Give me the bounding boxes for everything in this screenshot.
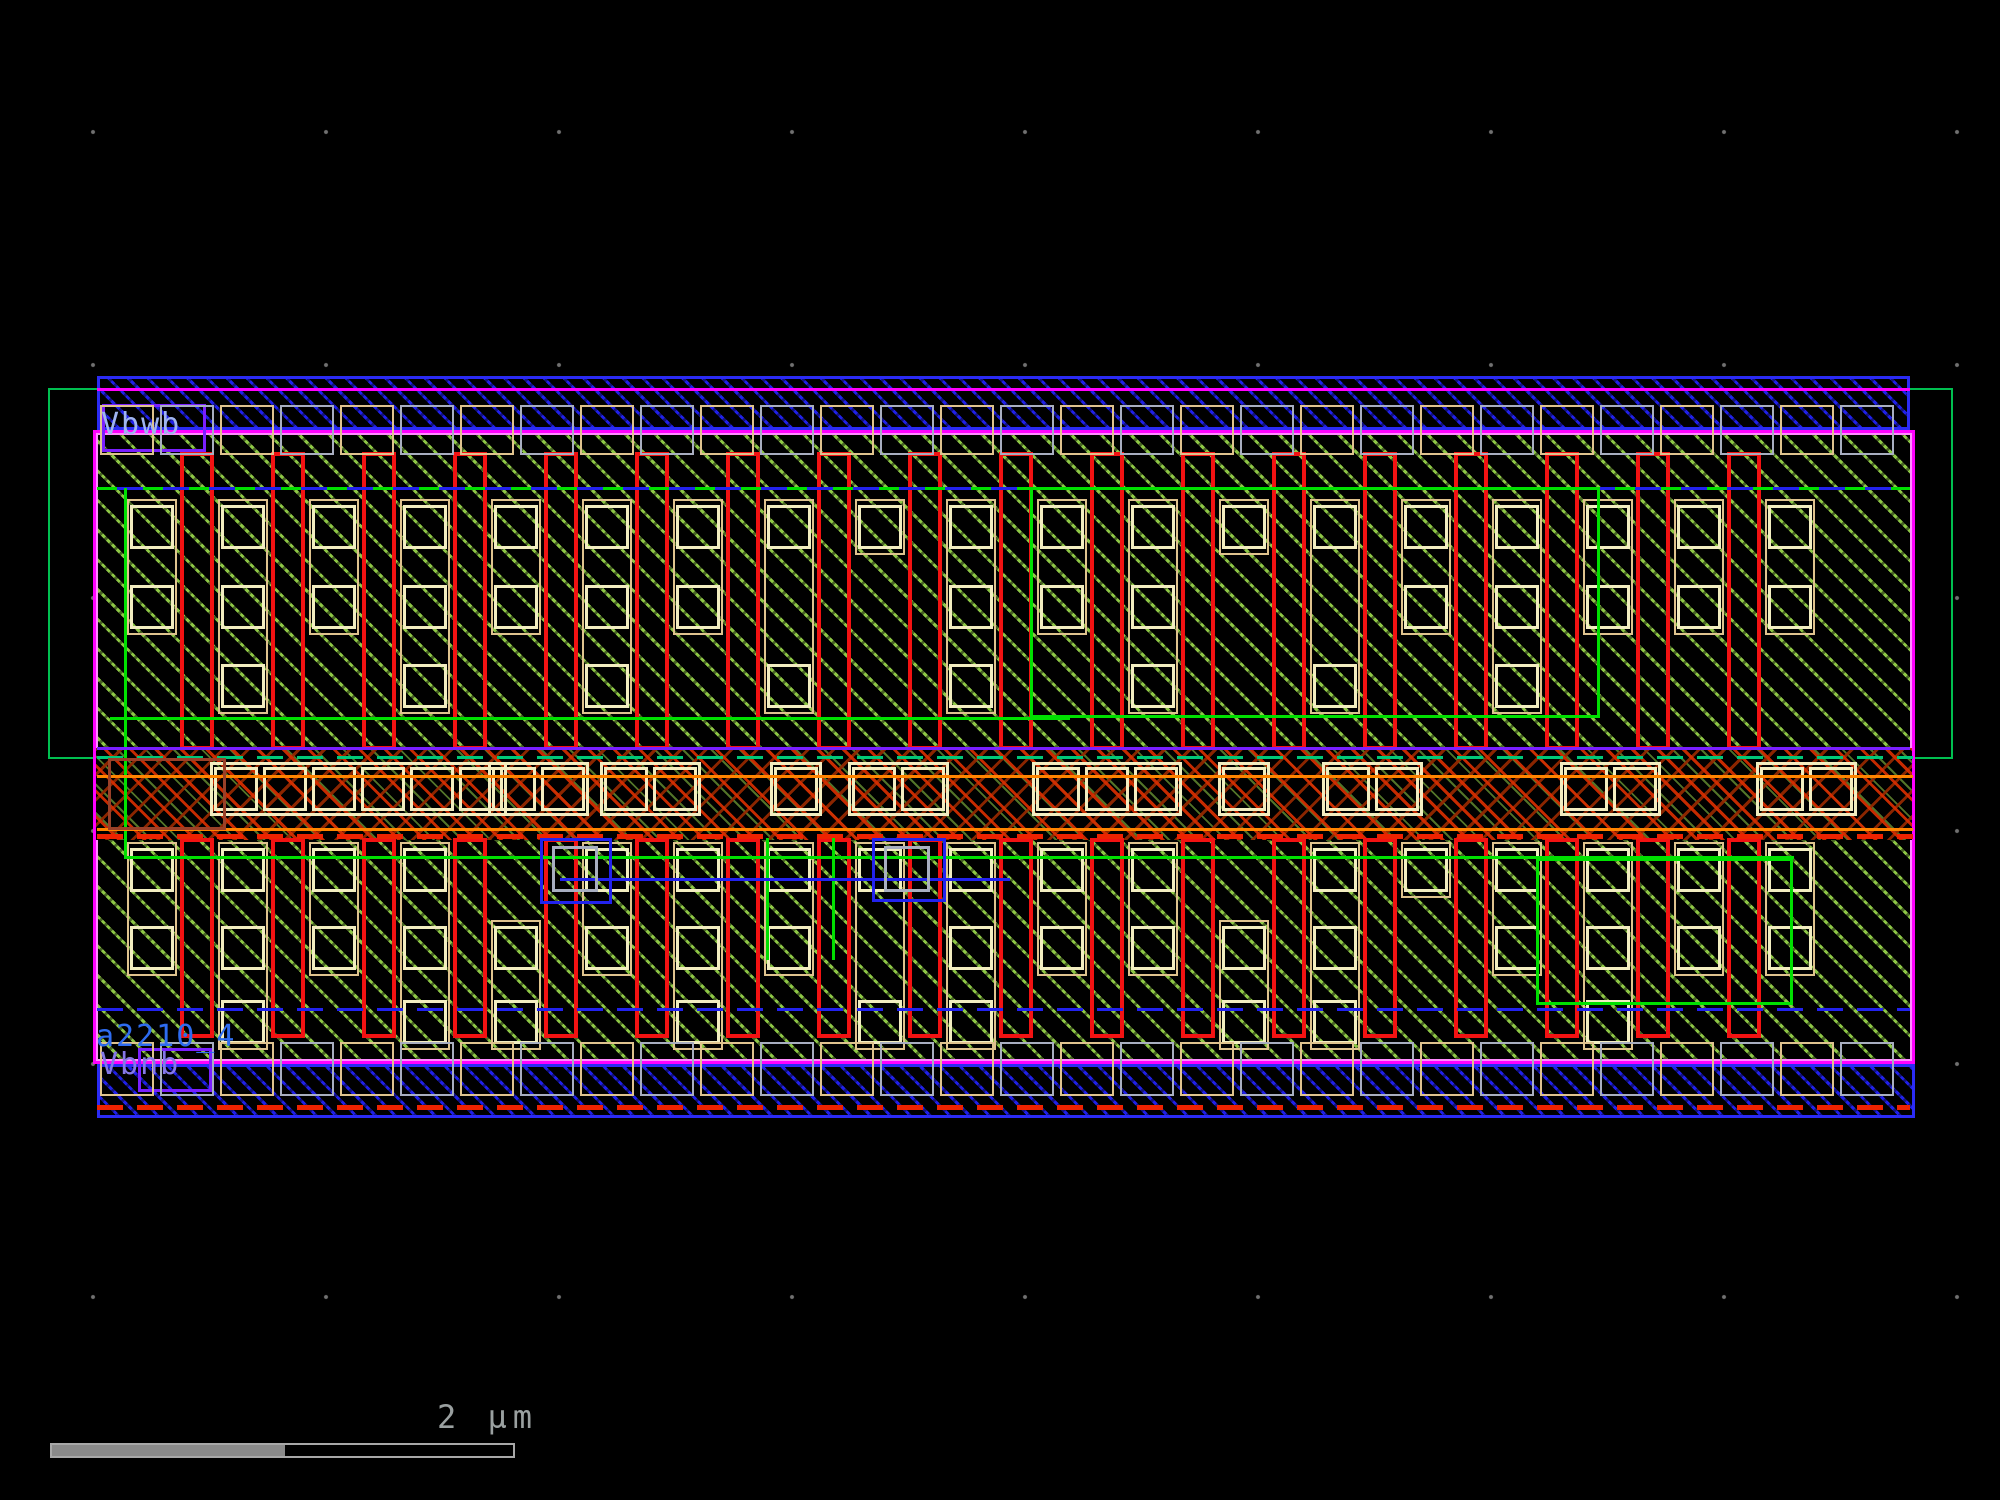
band-rail-bottom <box>97 828 1913 831</box>
tap-contact <box>1840 1042 1894 1096</box>
contact <box>403 848 447 892</box>
tap-contact <box>940 405 994 455</box>
contact <box>1036 767 1080 811</box>
tap-contact <box>1300 1042 1354 1096</box>
rail-dashed-line <box>97 1105 1910 1110</box>
tap-contact <box>1120 405 1174 455</box>
contact <box>1222 767 1266 811</box>
metal-route <box>560 878 1010 881</box>
tap-contact <box>280 405 334 455</box>
contact <box>312 767 356 811</box>
layout-viewport[interactable]: Vbwb a2210_4 Vbnb 2 µm <box>0 0 2000 1500</box>
poly-gate <box>180 452 214 750</box>
scalebar-label: 2 µm <box>437 1398 538 1436</box>
contact <box>130 848 174 892</box>
tap-contact <box>1360 1042 1414 1096</box>
poly-gate <box>726 452 760 750</box>
tap-contact <box>1600 1042 1654 1096</box>
contact <box>604 767 648 811</box>
tap-contact <box>760 405 814 455</box>
contact <box>130 505 174 549</box>
contact <box>494 505 538 549</box>
contact <box>1760 767 1804 811</box>
contact <box>852 767 896 811</box>
outer-green-under-band <box>97 756 1913 759</box>
contact <box>221 848 265 892</box>
tap-contact <box>760 1042 814 1096</box>
contact <box>1040 926 1084 970</box>
contact <box>1134 767 1178 811</box>
poly-gate <box>908 452 942 750</box>
tap-contact <box>1540 1042 1594 1096</box>
tap-contact <box>1060 1042 1114 1096</box>
tap-contact <box>700 1042 754 1096</box>
contact <box>403 1000 447 1044</box>
contact <box>494 585 538 629</box>
poly-gate <box>635 452 669 750</box>
contact <box>221 505 265 549</box>
tap-contact <box>1420 405 1474 455</box>
contact <box>541 767 585 811</box>
tap-contact <box>1180 1042 1234 1096</box>
contact <box>858 505 902 549</box>
contact <box>1375 767 1419 811</box>
tap-contact <box>1660 405 1714 455</box>
tap-contact <box>1000 405 1054 455</box>
tap-contact <box>1480 1042 1534 1096</box>
tap-contact <box>400 1042 454 1096</box>
contact <box>585 505 629 549</box>
contact <box>410 767 454 811</box>
pplus-edge <box>110 717 1070 720</box>
contact <box>263 767 307 811</box>
contact <box>767 505 811 549</box>
tap-contact <box>520 405 574 455</box>
nplus-edge <box>832 838 835 960</box>
tap-contact <box>340 405 394 455</box>
tap-contact <box>1420 1042 1474 1096</box>
tap-contact <box>1000 1042 1054 1096</box>
tap-contact <box>820 405 874 455</box>
contact <box>1809 767 1853 811</box>
contact <box>949 585 993 629</box>
contact <box>949 664 993 708</box>
contact <box>767 848 811 892</box>
contact <box>676 505 720 549</box>
tap-contact <box>1180 405 1234 455</box>
tap-contact <box>280 1042 334 1096</box>
contact <box>949 1000 993 1044</box>
poly-gate <box>271 452 305 750</box>
contact <box>1768 585 1812 629</box>
implant-edge-dashed <box>97 1008 1910 1011</box>
poly-gate <box>1636 452 1670 750</box>
contact <box>767 664 811 708</box>
tap-contact <box>880 1042 934 1096</box>
contact <box>1222 1000 1266 1044</box>
contact <box>1586 1000 1630 1044</box>
contact <box>767 926 811 970</box>
contact <box>403 505 447 549</box>
contact <box>221 664 265 708</box>
via-box <box>552 846 598 892</box>
tap-contact <box>1060 405 1114 455</box>
band-rail-top <box>97 775 1913 778</box>
contact <box>901 767 945 811</box>
tap-contact <box>1540 405 1594 455</box>
contact <box>221 926 265 970</box>
contact <box>312 926 356 970</box>
contact <box>492 767 536 811</box>
contact <box>858 1000 902 1044</box>
contact <box>1040 848 1084 892</box>
tap-contact <box>1360 405 1414 455</box>
well-contact-line <box>97 747 1910 750</box>
via-box <box>884 846 930 892</box>
tap-contact <box>1840 405 1894 455</box>
poly-gate <box>453 452 487 750</box>
contact <box>1495 848 1539 892</box>
net-label-vbnb[interactable]: Vbnb <box>100 1050 180 1080</box>
tap-contact <box>1600 405 1654 455</box>
tap-contact <box>1120 1042 1174 1096</box>
tap-contact <box>1300 405 1354 455</box>
tap-contact <box>460 1042 514 1096</box>
contact <box>403 664 447 708</box>
contact <box>312 505 356 549</box>
contact <box>1326 767 1370 811</box>
contact <box>1222 926 1266 970</box>
tap-contact <box>580 1042 634 1096</box>
contact <box>1313 926 1357 970</box>
tap-contact <box>1780 1042 1834 1096</box>
contact <box>312 585 356 629</box>
tap-contact <box>940 1042 994 1096</box>
tap-contact <box>1240 405 1294 455</box>
tap-contact <box>1240 1042 1294 1096</box>
scalebar <box>50 1443 515 1458</box>
contact <box>1495 926 1539 970</box>
contact <box>1131 926 1175 970</box>
tap-contact <box>580 405 634 455</box>
contact <box>1613 767 1657 811</box>
contact <box>1768 505 1812 549</box>
contact <box>676 848 720 892</box>
contact <box>403 585 447 629</box>
nplus-region <box>1536 858 1793 1005</box>
contact <box>494 926 538 970</box>
contact <box>676 585 720 629</box>
band-edge-dashed <box>97 834 1913 839</box>
contact <box>676 1000 720 1044</box>
poly-gate <box>817 452 851 750</box>
tap-contact <box>1720 405 1774 455</box>
tap-contact <box>820 1042 874 1096</box>
tap-contact <box>640 405 694 455</box>
contact <box>585 585 629 629</box>
contact <box>653 767 697 811</box>
contact <box>312 848 356 892</box>
tap-contact <box>460 405 514 455</box>
contact <box>1131 848 1175 892</box>
contact <box>130 585 174 629</box>
contact <box>1677 505 1721 549</box>
contact <box>949 848 993 892</box>
contact <box>361 767 405 811</box>
sub-contact <box>108 758 226 830</box>
contact <box>1404 848 1448 892</box>
tap-contact <box>700 405 754 455</box>
contact <box>585 664 629 708</box>
contact <box>1313 1000 1357 1044</box>
contact <box>1564 767 1608 811</box>
contact <box>585 926 629 970</box>
poly-gate <box>1727 452 1761 750</box>
tap-contact <box>400 405 454 455</box>
contact <box>221 585 265 629</box>
poly-gate <box>362 452 396 750</box>
poly-gate <box>544 452 578 750</box>
poly-gate <box>999 452 1033 750</box>
contact <box>774 767 818 811</box>
contact <box>130 926 174 970</box>
pplus-region <box>1030 487 1600 718</box>
tap-contact <box>1660 1042 1714 1096</box>
contact <box>403 926 447 970</box>
nwell-edge-line <box>97 388 1910 391</box>
tap-contact <box>520 1042 574 1096</box>
contact <box>949 926 993 970</box>
contact <box>1677 585 1721 629</box>
tap-contact <box>1780 405 1834 455</box>
scalebar-fill <box>52 1445 285 1456</box>
tap-contact <box>1720 1042 1774 1096</box>
implant-edge-dashed-dashes <box>97 487 1910 490</box>
tap-contact <box>880 405 934 455</box>
tap-contact <box>220 405 274 455</box>
net-label-vbwb[interactable]: Vbwb <box>101 410 181 440</box>
tap-contact <box>340 1042 394 1096</box>
nplus-edge <box>766 838 769 960</box>
contact <box>949 505 993 549</box>
contact <box>1085 767 1129 811</box>
contact <box>494 1000 538 1044</box>
tap-contact <box>1480 405 1534 455</box>
contact <box>676 926 720 970</box>
contact <box>1313 848 1357 892</box>
tap-contact <box>640 1042 694 1096</box>
